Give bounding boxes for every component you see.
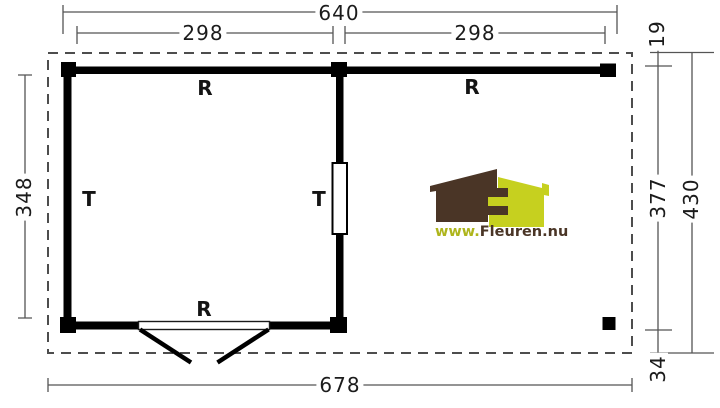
door-threshold bbox=[139, 322, 270, 330]
dim-top-total: 640 bbox=[315, 3, 362, 23]
double-door bbox=[139, 322, 270, 363]
dim-right-total-depth: 430 bbox=[681, 175, 701, 222]
corner-post-bottom-middle bbox=[330, 317, 347, 333]
window bbox=[333, 163, 348, 234]
corner-post-top-middle bbox=[331, 62, 347, 77]
corner-post-top-left bbox=[61, 62, 76, 77]
label-wall-left: T bbox=[82, 189, 96, 209]
dim-left-inner-depth: 348 bbox=[14, 173, 34, 220]
floor-plan-drawing bbox=[0, 0, 720, 408]
logo-house-brown-shape bbox=[430, 169, 508, 222]
label-wall-top-left: R bbox=[197, 78, 212, 98]
logo-text-fleuren: Fleuren.nu bbox=[480, 224, 569, 240]
floor-plan-canvas: 640 298 298 19 348 377 430 34 678 R R R … bbox=[0, 0, 720, 408]
door-leaf-right bbox=[218, 330, 269, 363]
fleuren-logo-house-icon bbox=[430, 169, 549, 227]
fleuren-logo-text: www.Fleuren.nu bbox=[435, 224, 550, 241]
logo-text-www: www. bbox=[435, 224, 480, 240]
dim-bottom-total: 678 bbox=[316, 375, 363, 395]
label-wall-bottom: R bbox=[196, 299, 211, 319]
dim-top-left-bay: 298 bbox=[179, 23, 226, 43]
dim-right-overhang-bottom: 34 bbox=[648, 352, 668, 385]
corner-post-bottom-left bbox=[60, 317, 76, 333]
dim-right-canopy-depth: 377 bbox=[648, 174, 668, 221]
dim-right-overhang-top: 19 bbox=[647, 17, 667, 50]
label-wall-middle: T bbox=[312, 189, 326, 209]
canopy-post bbox=[603, 317, 616, 330]
door-leaf-left bbox=[140, 330, 191, 363]
dimension-lines bbox=[18, 5, 714, 392]
dim-top-right-bay: 298 bbox=[451, 23, 498, 43]
beam-end-cap bbox=[600, 64, 616, 78]
wall-left bbox=[64, 66, 72, 333]
logo-house-green-shape bbox=[488, 177, 549, 227]
label-beam-top-right: R bbox=[464, 77, 479, 97]
